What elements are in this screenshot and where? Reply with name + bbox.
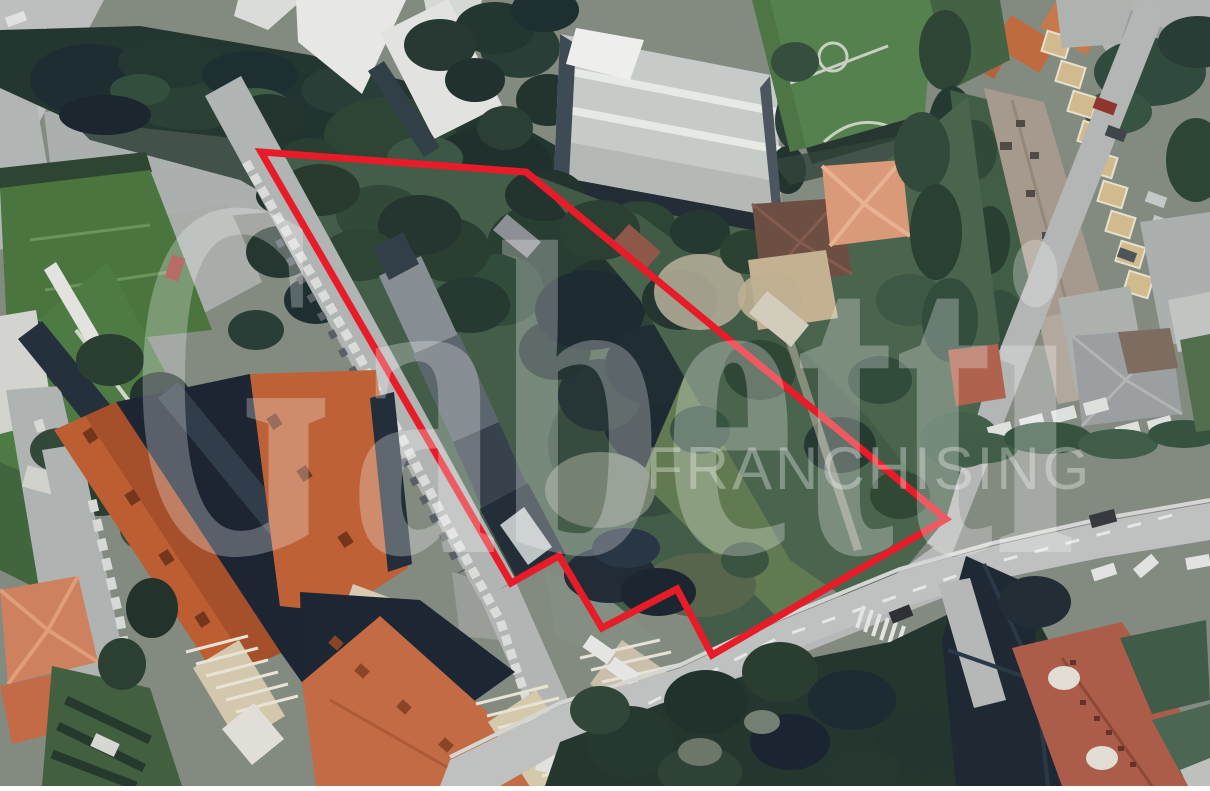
svg-text:FRANCHISING: FRANCHISING (646, 435, 1092, 502)
svg-text:G: G (130, 89, 332, 665)
svg-text:abetti: abetti (350, 152, 1076, 650)
